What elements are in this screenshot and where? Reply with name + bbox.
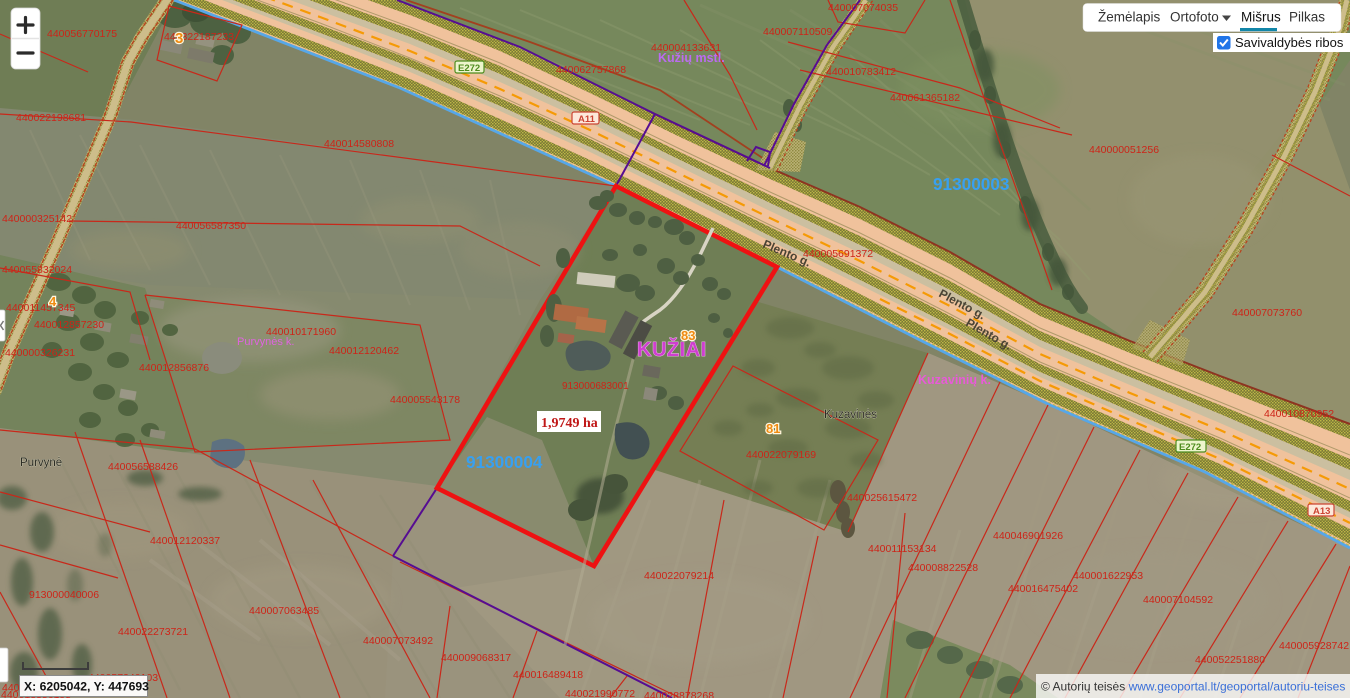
svg-text:Kuzavinės: Kuzavinės [824,409,877,421]
svg-text:E272: E272 [458,63,480,74]
svg-text:440005543178: 440005543178 [390,394,460,406]
svg-text:440061365182: 440061365182 [890,92,960,104]
svg-text:913000683001: 913000683001 [562,381,629,392]
svg-text:440022273721: 440022273721 [118,626,188,638]
svg-text:440000325142: 440000325142 [2,213,72,225]
svg-text:81: 81 [766,421,780,436]
svg-text:91300004: 91300004 [466,452,543,472]
svg-text:440007073760: 440007073760 [1232,307,1302,319]
svg-text:440005691372: 440005691372 [803,248,873,260]
svg-text:4: 4 [49,294,57,309]
svg-text:440007074035: 440007074035 [828,2,898,14]
svg-text:440000051256: 440000051256 [1089,144,1159,156]
svg-text:3: 3 [175,30,183,47]
svg-text:440056587350: 440056587350 [176,220,246,232]
svg-text:440012856876: 440012856876 [139,362,209,374]
svg-text:Purvynės k.: Purvynės k. [237,336,294,348]
svg-text:440022079169: 440022079169 [746,449,816,461]
svg-text:440022198681: 440022198681 [16,112,86,124]
svg-text:440012120462: 440012120462 [329,345,399,357]
svg-text:440062757868: 440062757868 [556,64,626,76]
svg-text:Žemėlapis: Žemėlapis [1098,10,1161,25]
svg-text:A13: A13 [1313,506,1330,517]
svg-text:913000040006: 913000040006 [29,589,99,601]
svg-text:440025615472: 440025615472 [847,492,917,504]
svg-text:Pilkas: Pilkas [1289,10,1325,25]
svg-text:440046901926: 440046901926 [993,530,1063,542]
svg-text:440010870952: 440010870952 [1264,408,1334,420]
svg-text:Mišrus: Mišrus [1241,10,1281,25]
svg-text:440008822528: 440008822528 [908,562,978,574]
svg-text:83: 83 [681,328,695,343]
svg-text:440052251880: 440052251880 [1195,654,1265,666]
svg-text:440007073492: 440007073492 [363,635,433,647]
svg-text:440012120337: 440012120337 [150,535,220,547]
svg-text:440028878268: 440028878268 [644,690,714,698]
svg-text:Savivaldybės ribos: Savivaldybės ribos [1235,35,1344,50]
svg-text:440021990772: 440021990772 [565,688,635,698]
svg-text:Purvynė: Purvynė [20,457,62,469]
svg-text:Kuzavinių k.: Kuzavinių k. [918,373,991,387]
svg-text:440056770175: 440056770175 [47,28,117,40]
svg-text:440014580808: 440014580808 [324,138,394,150]
svg-text:440007063485: 440007063485 [249,605,319,617]
svg-text:440022079214: 440022079214 [644,570,714,582]
svg-text:X: 6205042, Y: 447693: X: 6205042, Y: 447693 [24,680,149,694]
svg-text:Kužių mstl.: Kužių mstl. [658,51,725,65]
svg-text:440001622953: 440001622953 [1073,570,1143,582]
svg-text:440016475402: 440016475402 [1008,583,1078,595]
svg-text:Ortofoto: Ortofoto [1170,10,1219,25]
svg-text:440055832024: 440055832024 [2,264,72,276]
svg-text:440000326231: 440000326231 [5,347,75,359]
svg-text:440011153134: 440011153134 [868,543,937,555]
svg-text:440007110509: 440007110509 [763,26,832,38]
svg-text:440012857230: 440012857230 [34,319,104,331]
svg-text:440007104592: 440007104592 [1143,594,1213,606]
svg-text:440009068317: 440009068317 [441,652,511,664]
svg-text:91300003: 91300003 [933,174,1009,194]
svg-text:© Autorių teisės www.geoportal: © Autorių teisės www.geoportal.lt/geopor… [1041,680,1345,694]
svg-text:A11: A11 [578,114,596,125]
svg-text:KUŽIAI: KUŽIAI [637,337,707,361]
svg-text:440005928742: 440005928742 [1279,640,1349,652]
svg-text:1,9749 ha: 1,9749 ha [541,416,598,431]
svg-text:440010783412: 440010783412 [826,66,896,78]
svg-text:E272: E272 [1179,442,1201,453]
svg-text:440016489418: 440016489418 [513,669,583,681]
svg-text:440011457345: 440011457345 [6,302,75,314]
svg-text:440056588426: 440056588426 [108,461,178,473]
